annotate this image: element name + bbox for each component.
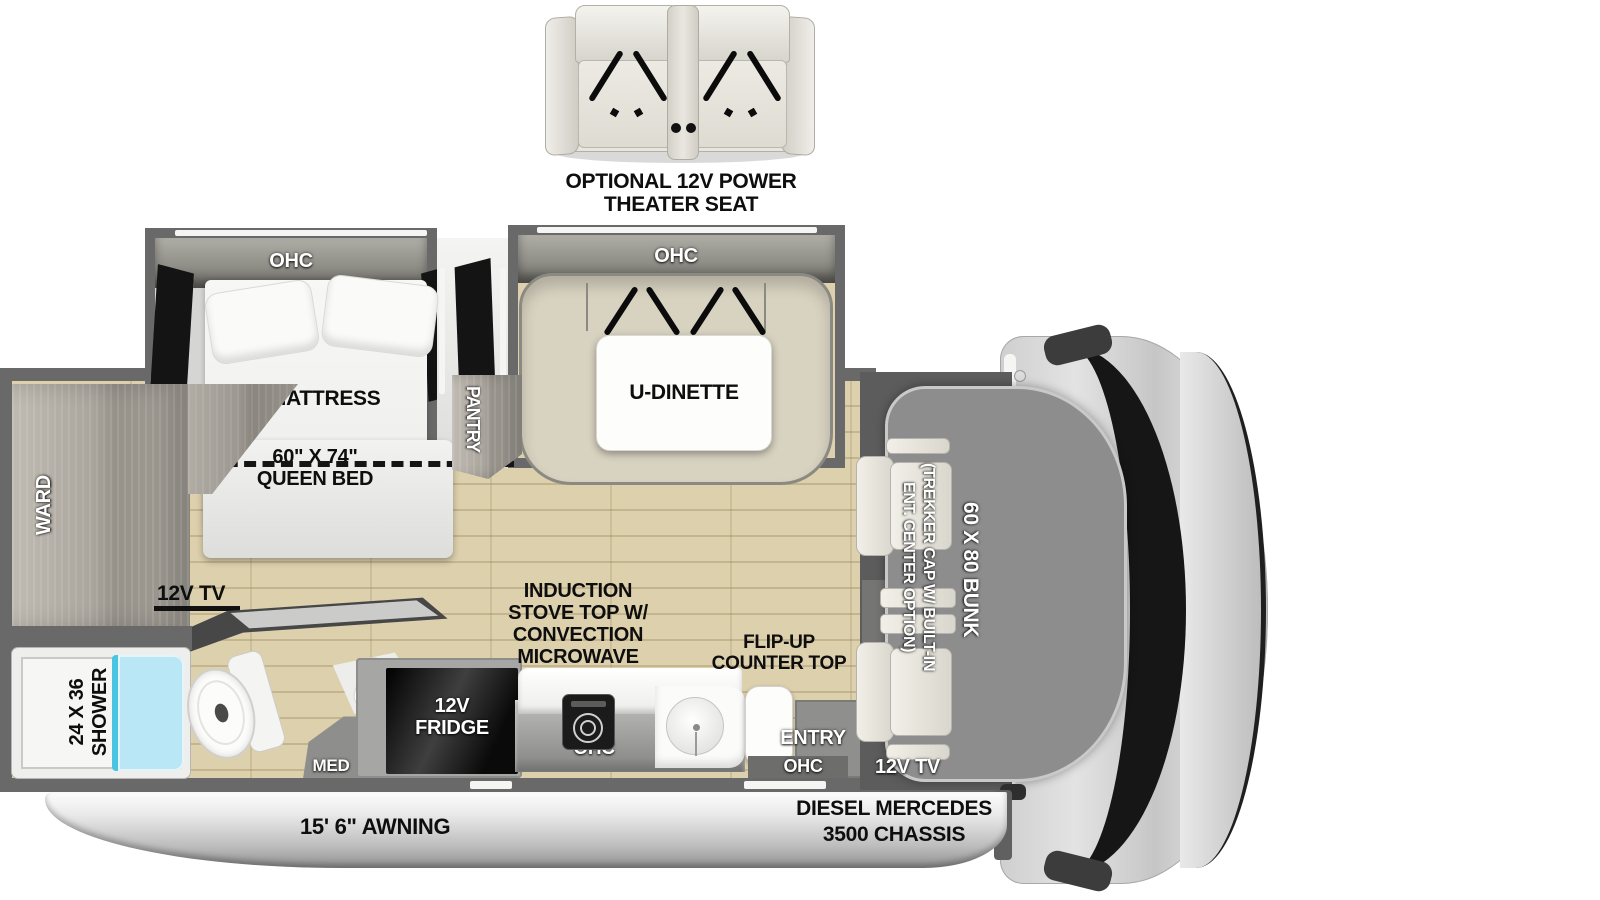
dinette-seat-seam — [764, 283, 766, 331]
seat-console — [667, 5, 699, 160]
sink-faucet — [695, 732, 697, 756]
trekker-option-label: (TREKKER CAP W/ BUILT-IN ENT. CENTER OPT… — [898, 437, 938, 697]
flipup-label-line1: FLIP-UP — [743, 632, 815, 654]
cab-tv-label: 12V TV — [875, 756, 940, 779]
left-wall — [0, 368, 12, 792]
cooktop-vent — [571, 701, 606, 707]
flipup-label-line2: COUNTER TOP — [712, 653, 847, 675]
shower-label-group: 24 X 36 SHOWER — [66, 647, 110, 777]
kitchen-sink — [666, 697, 724, 755]
chassis-label-line2: 3500 CHASSIS — [790, 822, 998, 848]
awning-label: 15' 6" AWNING — [300, 814, 450, 840]
chassis-label-line1: DIESEL MERCEDES — [790, 796, 998, 822]
slide-top-marker — [175, 230, 427, 236]
trekker-line1: (TREKKER CAP W/ BUILT-IN — [918, 437, 938, 697]
sink-drain — [693, 724, 700, 731]
dinette-ohc-label: OHC — [654, 245, 698, 268]
entry-door-opening — [744, 781, 826, 789]
induction-label-3: CONVECTION — [513, 624, 643, 647]
flipup-counter — [745, 686, 793, 766]
theater-seat-label-line2: THEATER SEAT — [604, 193, 758, 217]
induction-label-2: STOVE TOP W/ — [508, 602, 648, 625]
pantry-label: PANTRY — [462, 386, 483, 478]
med-label: MED — [313, 756, 350, 776]
dinette-slideout: OHC U-DINETTE — [508, 225, 845, 468]
cupholder-icon — [686, 123, 696, 133]
entry-ohc-label: OHC — [783, 756, 822, 777]
bunk-label: 60 X 80 BUNK — [958, 502, 982, 672]
rv-floorplan-diagram: OPTIONAL 12V POWER THEATER SEAT OHC OHC — [0, 0, 1600, 900]
cupholder-icon — [671, 123, 681, 133]
shower-size-label: 24 X 36 — [66, 647, 89, 777]
cooktop-burner-inner — [580, 720, 596, 736]
trekker-line2: ENT. CENTER OPTION) — [898, 437, 918, 697]
fridge-label-line2: FRIDGE — [415, 717, 489, 740]
bed-type-label: QUEEN BED — [257, 468, 373, 491]
induction-label-1: INDUCTION — [524, 580, 632, 603]
seat-back — [856, 642, 894, 742]
slide-top-marker — [537, 227, 817, 233]
ward-label: WARD — [33, 457, 55, 553]
theater-seat-label-line1: OPTIONAL 12V POWER — [565, 170, 796, 194]
seat-cushion-right — [687, 60, 787, 148]
fridge-label-line1: 12V — [435, 695, 470, 718]
seat-backrest-right — [685, 5, 790, 63]
seat-back — [856, 456, 894, 556]
top-wall-left — [0, 368, 152, 381]
seat-cushion-left — [578, 60, 678, 148]
dinette-seat-seam — [586, 283, 588, 331]
induction-label-4: MICROWAVE — [517, 646, 638, 669]
rivet-icon — [1014, 370, 1026, 382]
shower-label: SHOWER — [89, 647, 112, 777]
dinette-label: U-DINETTE — [629, 381, 738, 405]
entry-label: ENTRY — [780, 727, 846, 750]
chassis-label-group: DIESEL MERCEDES 3500 CHASSIS — [790, 796, 998, 848]
theater-seat-graphic — [545, 5, 815, 165]
shower-glass — [112, 655, 184, 771]
seat-armrest-left — [545, 16, 579, 156]
kitchen-window-opening — [470, 781, 512, 789]
cab-front-shell — [1180, 352, 1266, 868]
induction-cooktop-icon — [563, 695, 614, 749]
pillow — [320, 273, 440, 358]
seat-backrest-left — [575, 5, 680, 63]
